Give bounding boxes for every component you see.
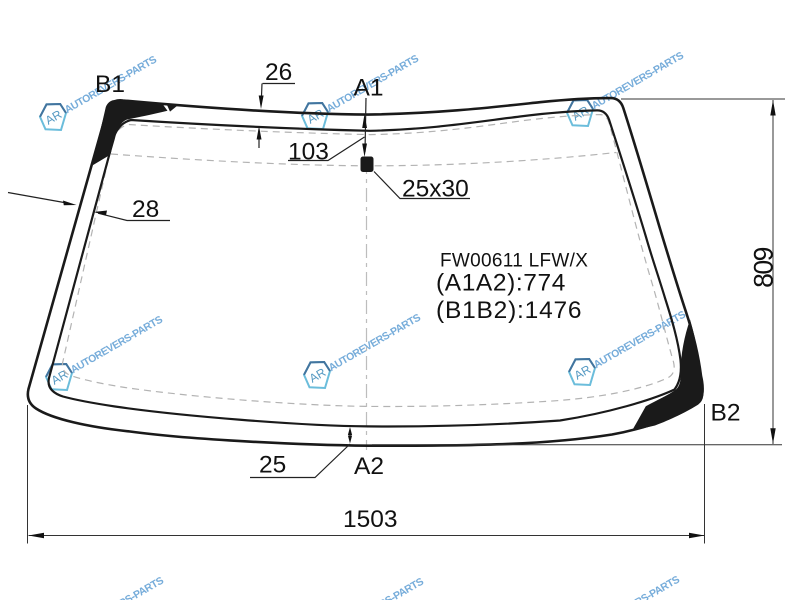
svg-text:(B1B2):1476: (B1B2):1476 (436, 297, 582, 324)
svg-text:1503: 1503 (343, 506, 398, 533)
svg-text:A1: A1 (354, 75, 384, 102)
svg-text:809: 809 (749, 247, 779, 287)
svg-text:B1: B1 (95, 71, 125, 98)
svg-text:26: 26 (265, 59, 292, 86)
svg-text:25: 25 (259, 452, 286, 479)
svg-text:(A1A2):774: (A1A2):774 (436, 270, 566, 297)
svg-text:103: 103 (288, 139, 329, 166)
svg-text:FW00611 LFW/X: FW00611 LFW/X (440, 251, 588, 272)
svg-text:28: 28 (132, 196, 159, 223)
svg-text:B2: B2 (711, 400, 741, 427)
svg-text:A2: A2 (354, 453, 384, 480)
